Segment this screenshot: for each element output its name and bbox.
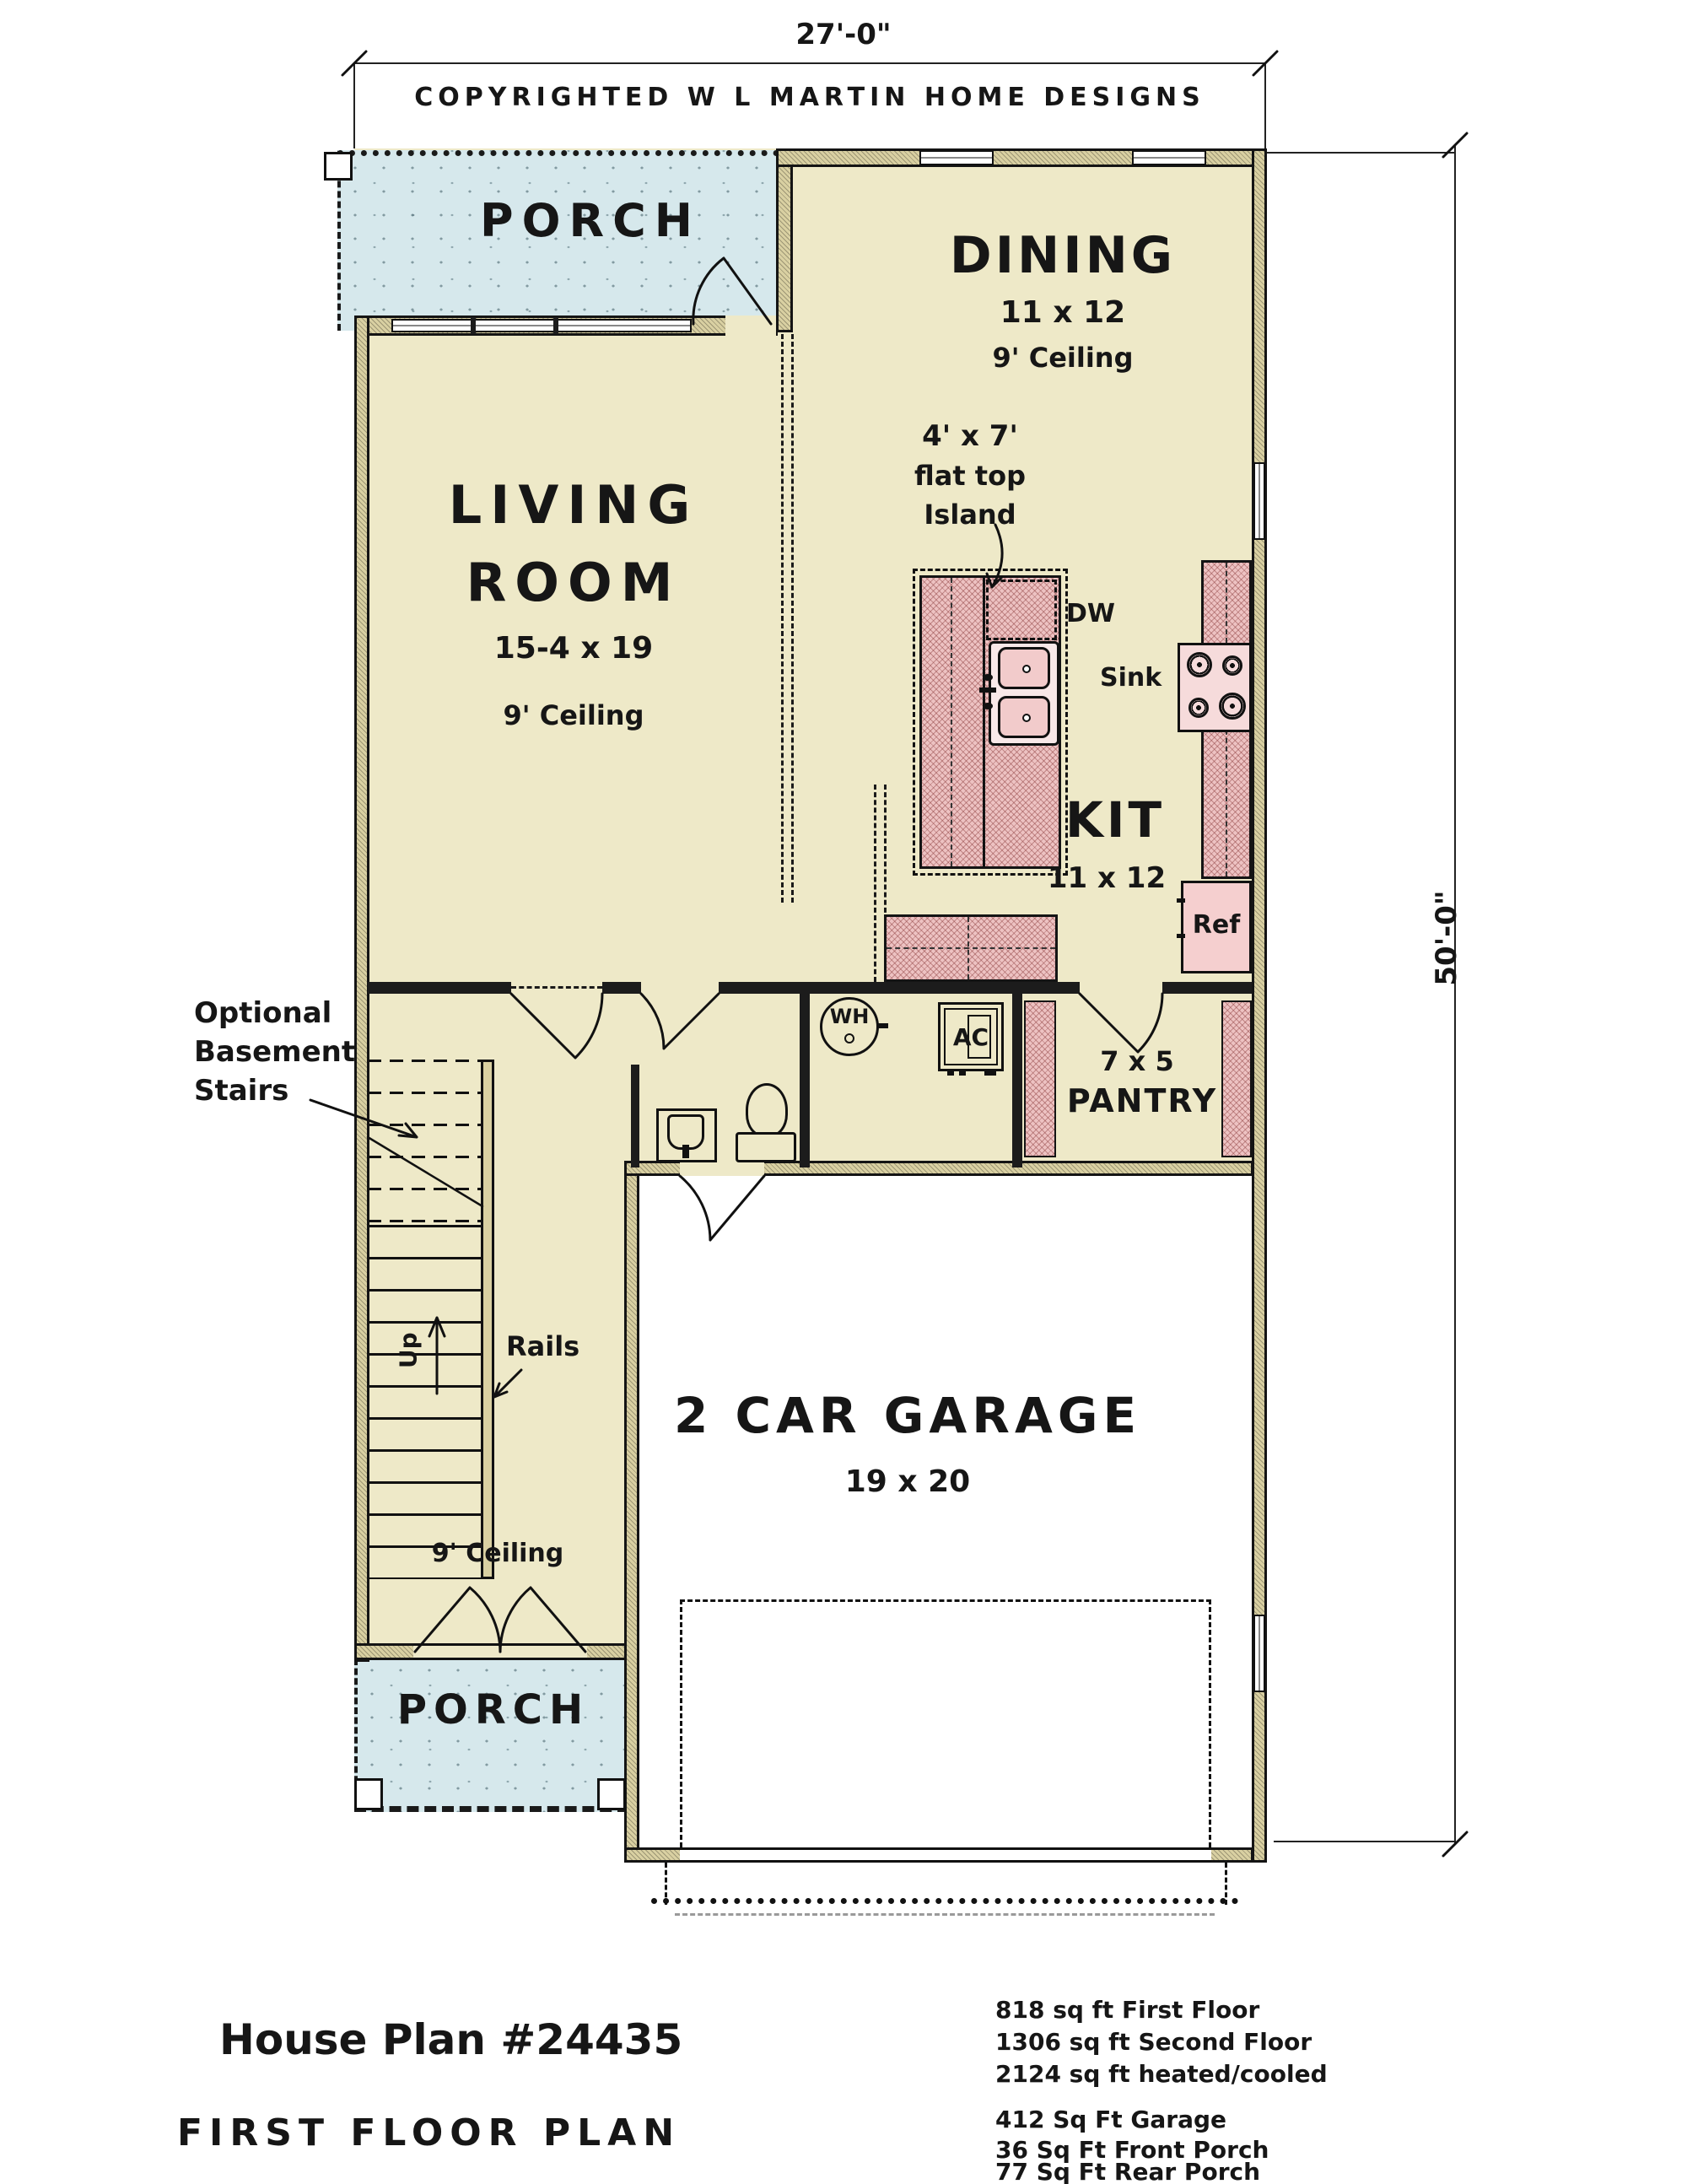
apron-line-heavy bbox=[651, 1898, 1238, 1904]
garage-label: 2 CAR GARAGE bbox=[638, 1390, 1178, 1442]
living-dining-dashed-line-a bbox=[781, 334, 784, 903]
opening-french-doors bbox=[413, 1643, 587, 1660]
living-ceiling-label: 9' Ceiling bbox=[388, 702, 759, 731]
right-dim-ext-bottom bbox=[1274, 1841, 1454, 1842]
dw-label: DW bbox=[1066, 601, 1151, 628]
wh-stub bbox=[876, 1023, 888, 1028]
living-front-window-band bbox=[391, 319, 692, 332]
right-dim-ext-top bbox=[1267, 152, 1454, 154]
height-dimension-label: 50'-0" bbox=[1432, 862, 1469, 1014]
island-divider-line bbox=[983, 578, 985, 866]
opening-bath-door bbox=[641, 982, 719, 994]
dining-size-label: 11 x 12 bbox=[877, 297, 1248, 329]
stairs-note-line1: Optional bbox=[194, 999, 331, 1029]
opening-garage-entry-door bbox=[680, 1161, 764, 1176]
toilet-bowl-icon bbox=[746, 1083, 788, 1137]
area-second-floor: 1306 sq ft Second Floor bbox=[995, 2030, 1312, 2054]
bath-vanity-sink-icon bbox=[656, 1108, 717, 1162]
dishwasher bbox=[986, 580, 1057, 640]
burner-icon bbox=[1188, 698, 1209, 718]
toilet-tank-icon bbox=[736, 1132, 796, 1162]
opening-hall-dashed-header bbox=[511, 986, 602, 989]
ref-handle-1 bbox=[1177, 898, 1185, 903]
dining-label: DINING bbox=[877, 229, 1248, 283]
top-dimension-line bbox=[354, 62, 1265, 64]
dining-top-window-1 bbox=[919, 150, 994, 165]
wall-utility-pantry-divider bbox=[1012, 994, 1022, 1167]
living-label-line2: ROOM bbox=[388, 555, 759, 610]
dining-top-window-2 bbox=[1132, 150, 1206, 165]
ac-foot-1 bbox=[947, 1070, 954, 1076]
area-heated-cooled: 2124 sq ft heated/cooled bbox=[995, 2062, 1328, 2086]
island-note-line3: Island bbox=[877, 501, 1063, 530]
garage-size-label: 19 x 20 bbox=[638, 1466, 1178, 1498]
sheet-title: FIRST FLOOR PLAN bbox=[177, 2114, 666, 2153]
front-window-mullion-2 bbox=[553, 317, 558, 334]
sink-faucet-knob-1 bbox=[983, 674, 993, 681]
rear-porch-post-left bbox=[354, 1778, 383, 1810]
island-note-line1: 4' x 7' bbox=[877, 422, 1063, 452]
copyright-text: COPYRIGHTED W L MARTIN HOME DESIGNS bbox=[354, 84, 1265, 111]
living-label-line1: LIVING bbox=[388, 477, 759, 532]
dining-ceiling-label: 9' Ceiling bbox=[877, 344, 1248, 373]
wall-garage-left bbox=[624, 1161, 639, 1863]
pantry-shelf-right bbox=[1221, 1000, 1252, 1157]
refrigerator: Ref bbox=[1181, 881, 1252, 973]
island-note-line2: flat top bbox=[877, 462, 1063, 491]
living-size-label: 15-4 x 19 bbox=[388, 633, 759, 665]
stair-rail bbox=[481, 1060, 494, 1579]
front-porch-label: PORCH bbox=[413, 197, 768, 245]
wh-valve bbox=[844, 1033, 854, 1043]
pantry-size-label: 7 x 5 bbox=[1061, 1048, 1213, 1076]
opening-pantry-door bbox=[1080, 982, 1162, 994]
kitchen-bottom-counter bbox=[884, 914, 1058, 982]
sink-faucet-knob-2 bbox=[983, 703, 993, 709]
front-window-mullion-1 bbox=[471, 317, 476, 334]
water-heater-icon: WH bbox=[820, 997, 879, 1056]
sink-faucet bbox=[979, 688, 996, 693]
plan-number-title: House Plan #24435 bbox=[219, 2018, 641, 2063]
ac-label: AC bbox=[941, 1025, 1001, 1049]
sink-bowl-top bbox=[998, 647, 1050, 689]
wall-right bbox=[1252, 148, 1267, 1863]
burner-icon bbox=[1219, 693, 1246, 720]
rear-porch-label: PORCH bbox=[367, 1689, 620, 1731]
dining-right-window bbox=[1253, 462, 1265, 540]
opening-front-door bbox=[725, 315, 776, 336]
hall-ceiling-label: 9' Ceiling bbox=[380, 1540, 616, 1567]
bottom-counter-dashed-h bbox=[887, 947, 1055, 949]
island-dashed-line bbox=[951, 578, 952, 866]
wall-porch-dining-divider bbox=[776, 148, 793, 332]
width-dimension-label: 27'-0" bbox=[725, 20, 962, 51]
stairs-up-label: Up bbox=[396, 1325, 420, 1376]
wall-bath-utility-divider bbox=[800, 994, 810, 1167]
rails-label: Rails bbox=[506, 1333, 579, 1362]
pantry-shelf-left bbox=[1024, 1000, 1056, 1157]
stairs-optional-basement-treads bbox=[368, 1060, 481, 1225]
sink-bowl-bottom bbox=[998, 696, 1050, 738]
area-rear-porch: 77 Sq Ft Rear Porch bbox=[995, 2160, 1260, 2184]
garage-right-window bbox=[1253, 1615, 1265, 1692]
living-kitchen-dashed-line-a bbox=[874, 785, 876, 982]
ref-label: Ref bbox=[1183, 912, 1249, 939]
sink-label: Sink bbox=[1100, 665, 1201, 692]
apron-line-light bbox=[675, 1913, 1215, 1916]
kitchen-size-label: 11 x 12 bbox=[1031, 864, 1183, 894]
sink-drain-top bbox=[1022, 665, 1031, 673]
vanity-faucet bbox=[682, 1145, 689, 1158]
area-garage: 412 Sq Ft Garage bbox=[995, 2107, 1226, 2132]
living-dining-dashed-line-b bbox=[791, 334, 794, 903]
stairs-up-treads bbox=[368, 1225, 481, 1579]
opening-garage-door bbox=[680, 1847, 1211, 1863]
stairs-note-line2: Basement bbox=[194, 1038, 355, 1068]
rear-porch-post-right bbox=[597, 1778, 626, 1810]
garage-overhead-door-outline bbox=[680, 1599, 1211, 1847]
ac-foot-2 bbox=[959, 1070, 966, 1076]
pantry-label: PANTRY bbox=[1058, 1085, 1226, 1119]
area-first-floor: 818 sq ft First Floor bbox=[995, 1998, 1259, 2022]
stairs-note-line3: Stairs bbox=[194, 1076, 288, 1107]
bottom-counter-dashed-v bbox=[967, 917, 969, 979]
front-porch-post bbox=[324, 152, 353, 181]
rear-porch-area bbox=[354, 1658, 629, 1812]
burner-icon bbox=[1222, 655, 1242, 676]
kitchen-sink bbox=[989, 641, 1059, 746]
ac-unit-icon: AC bbox=[938, 1002, 1004, 1071]
wh-label: WH bbox=[822, 1006, 876, 1027]
wall-bath-left bbox=[631, 1065, 639, 1167]
sink-drain-bottom bbox=[1022, 714, 1031, 722]
ac-foot-3 bbox=[984, 1070, 996, 1076]
kitchen-label: KIT bbox=[1048, 795, 1183, 846]
floor-plan-sheet: 27'-0" 50'-0" COPYRIGHTED W L MARTIN HOM… bbox=[0, 0, 1687, 2184]
